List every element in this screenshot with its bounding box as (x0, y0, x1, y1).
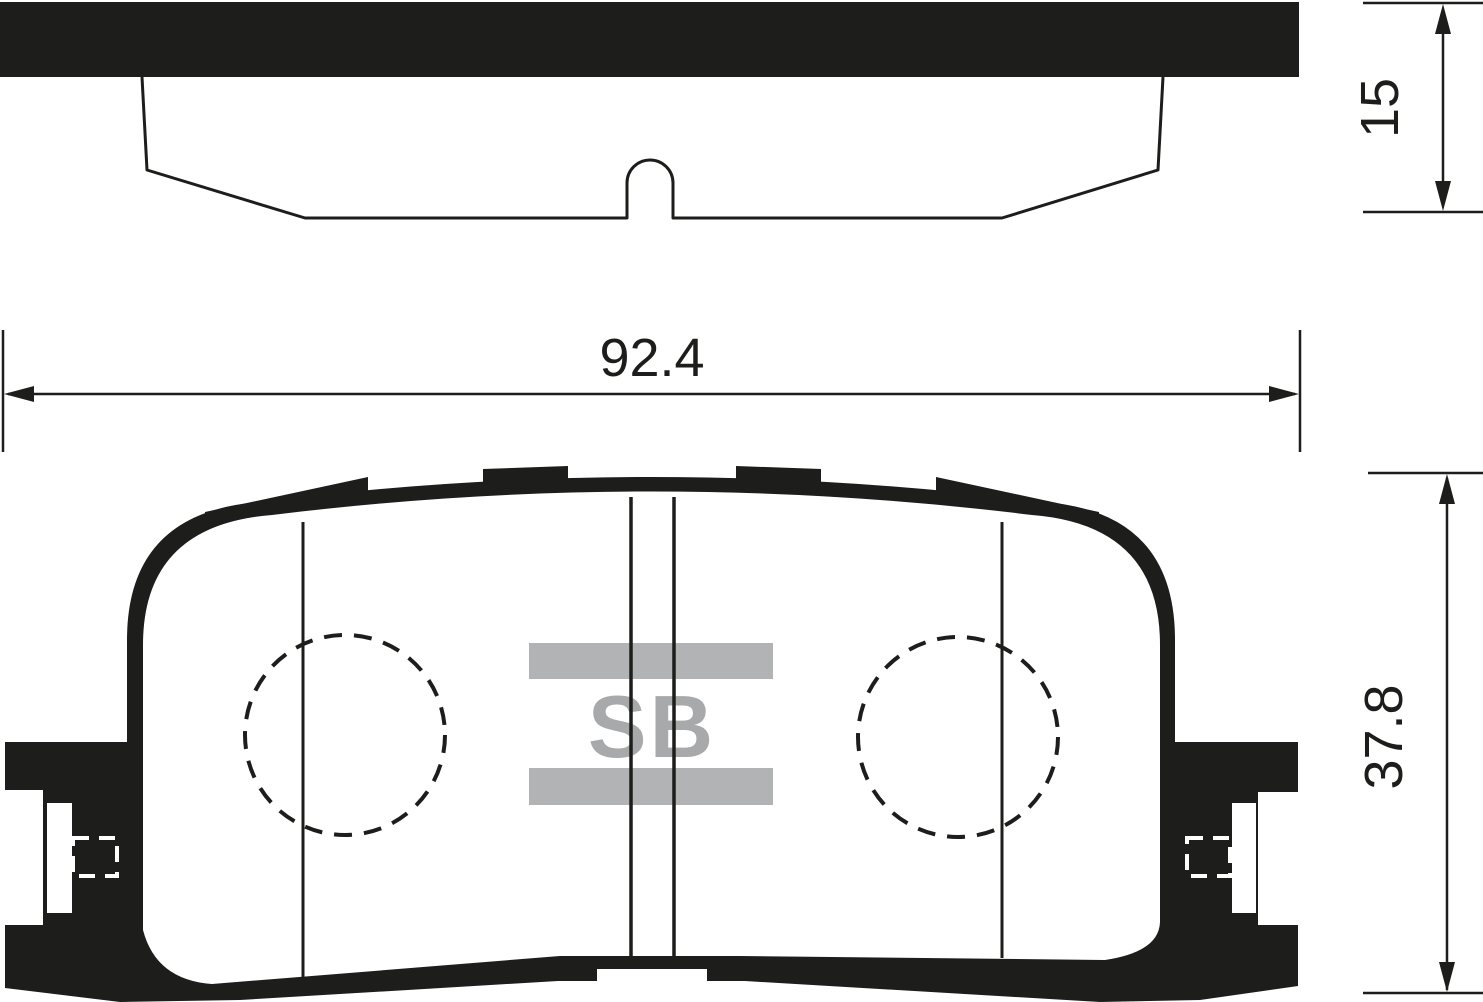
top-tab-left-inner (483, 466, 568, 490)
arrowhead-down-icon (1439, 962, 1455, 992)
arrowhead-up-icon (1435, 4, 1451, 34)
ear-slot-left (47, 803, 72, 913)
ear-slot-right (1232, 803, 1256, 913)
sb-logo: SB (588, 677, 716, 776)
backing-plate-side (0, 2, 1299, 77)
height-label: 37.8 (1354, 684, 1414, 789)
width-label: 92.4 (599, 328, 704, 388)
dimension-thickness: 15 (1350, 3, 1483, 212)
arrowhead-left-icon (4, 386, 34, 402)
arrowhead-down-icon (1435, 181, 1451, 211)
dimension-width: 92.4 (3, 328, 1300, 452)
brake-pad-drawing: 15 92.4 SB (0, 0, 1483, 1002)
thickness-label: 15 (1350, 78, 1410, 138)
arrowhead-up-icon (1439, 474, 1455, 504)
dimension-height: 37.8 (1354, 473, 1483, 993)
logo-bar-top (529, 643, 773, 679)
top-tab-right-inner (736, 466, 821, 490)
side-view (0, 2, 1299, 218)
bottom-center-notch (597, 969, 707, 1002)
front-view: SB (5, 466, 1298, 1002)
drawing-canvas: 15 92.4 SB (0, 0, 1483, 1002)
arrowhead-right-icon (1269, 386, 1299, 402)
friction-material-profile (142, 77, 1163, 218)
